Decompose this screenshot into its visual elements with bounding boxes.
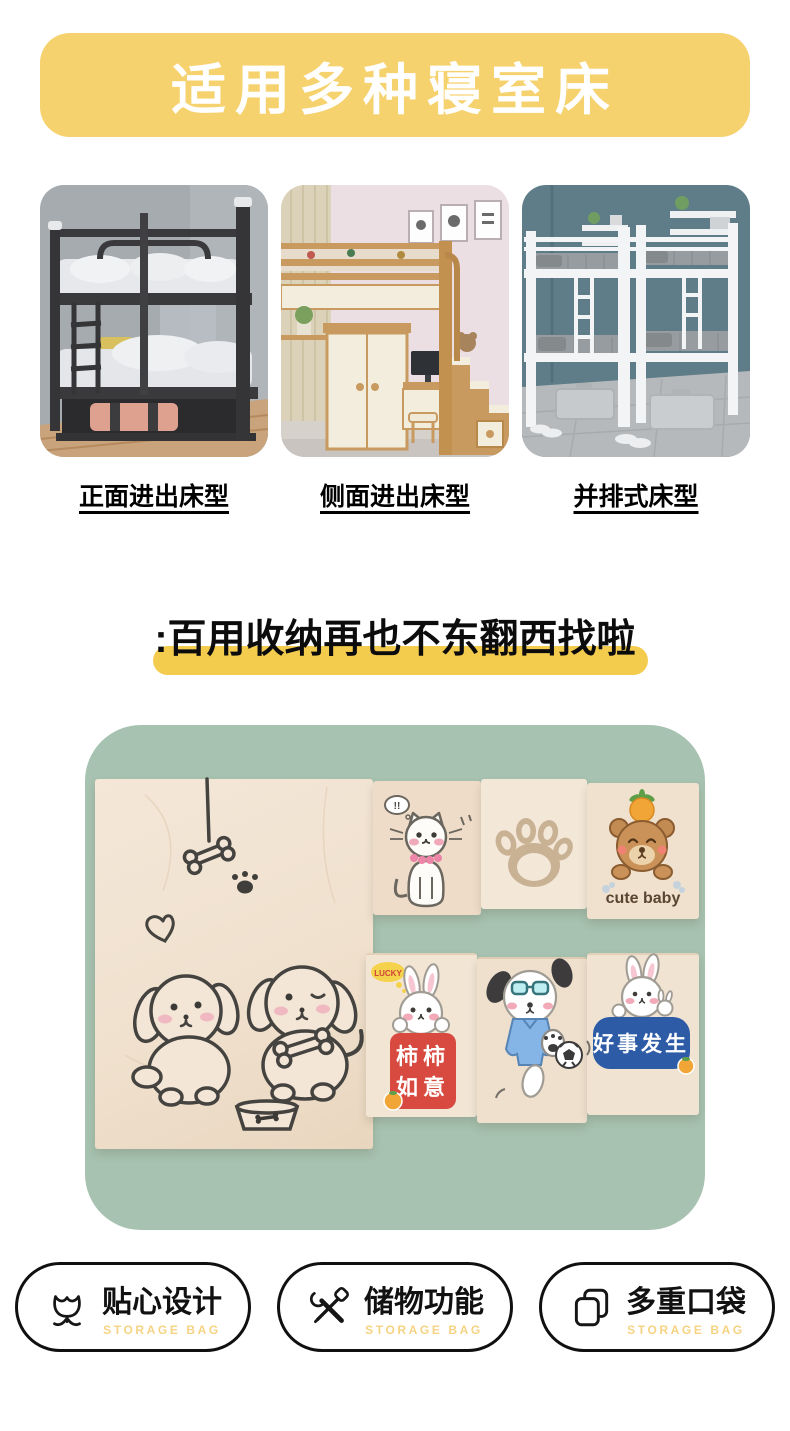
feature-thoughtful-design: 贴心设计 STORAGE BAG: [15, 1262, 251, 1352]
feature-storage-function: 储物功能 STORAGE BAG: [277, 1262, 513, 1352]
bag-pocket-peace-rabbit: [587, 953, 699, 1115]
product-showcase: !!: [85, 725, 705, 1230]
bag-pocket-lucky-rabbit: [366, 953, 477, 1117]
feature-label: 多重口袋: [626, 1277, 746, 1321]
feature-sublabel: STORAGE BAG: [627, 1323, 745, 1337]
tools-icon: [306, 1284, 352, 1330]
feature-sublabel: STORAGE BAG: [103, 1323, 221, 1337]
bag-panel-paw: [481, 779, 587, 909]
feature-label: 贴心设计: [102, 1277, 222, 1321]
product-detail-page: 适用多种寝室床: [0, 0, 790, 1431]
bag-panel-cat: [373, 781, 481, 915]
caption-front-entry: 正面进出床型: [40, 477, 268, 513]
banner-title: 适用多种寝室床: [171, 45, 619, 125]
section-headline: :百用收纳再也不东翻西找啦: [0, 608, 790, 664]
caption-side-by-side-label: 并排式床型: [573, 483, 698, 511]
caption-front-entry-label: 正面进出床型: [79, 483, 229, 511]
caption-side-entry: 侧面进出床型: [281, 477, 509, 513]
bed-photo-side-entry: [281, 185, 509, 457]
stacked-pockets-icon: [568, 1284, 614, 1330]
feature-label: 储物功能: [364, 1277, 484, 1321]
bed-photo-front-entry: [40, 185, 268, 457]
bunk-bed-front-illustration: [40, 185, 268, 457]
section-banner: 适用多种寝室床: [40, 33, 750, 137]
caption-side-entry-label: 侧面进出床型: [320, 483, 470, 511]
caption-side-by-side: 并排式床型: [522, 477, 750, 513]
bag-panel-bear: [587, 783, 699, 919]
feature-badges: 贴心设计 STORAGE BAG 储物功能 STORAGE BAG: [0, 1262, 790, 1352]
feature-multiple-pockets: 多重口袋 STORAGE BAG: [539, 1262, 775, 1352]
feature-sublabel: STORAGE BAG: [365, 1323, 483, 1337]
headline-text: :百用收纳再也不东翻西找啦: [155, 608, 636, 664]
loft-bed-illustration: [281, 185, 509, 457]
dorm-bunks-illustration: [522, 185, 750, 457]
bed-photo-side-by-side: [522, 185, 750, 457]
tulip-icon: [44, 1284, 90, 1330]
bag-panel-puppies: [95, 779, 373, 1149]
bag-pocket-soccer-dog: [477, 957, 587, 1123]
